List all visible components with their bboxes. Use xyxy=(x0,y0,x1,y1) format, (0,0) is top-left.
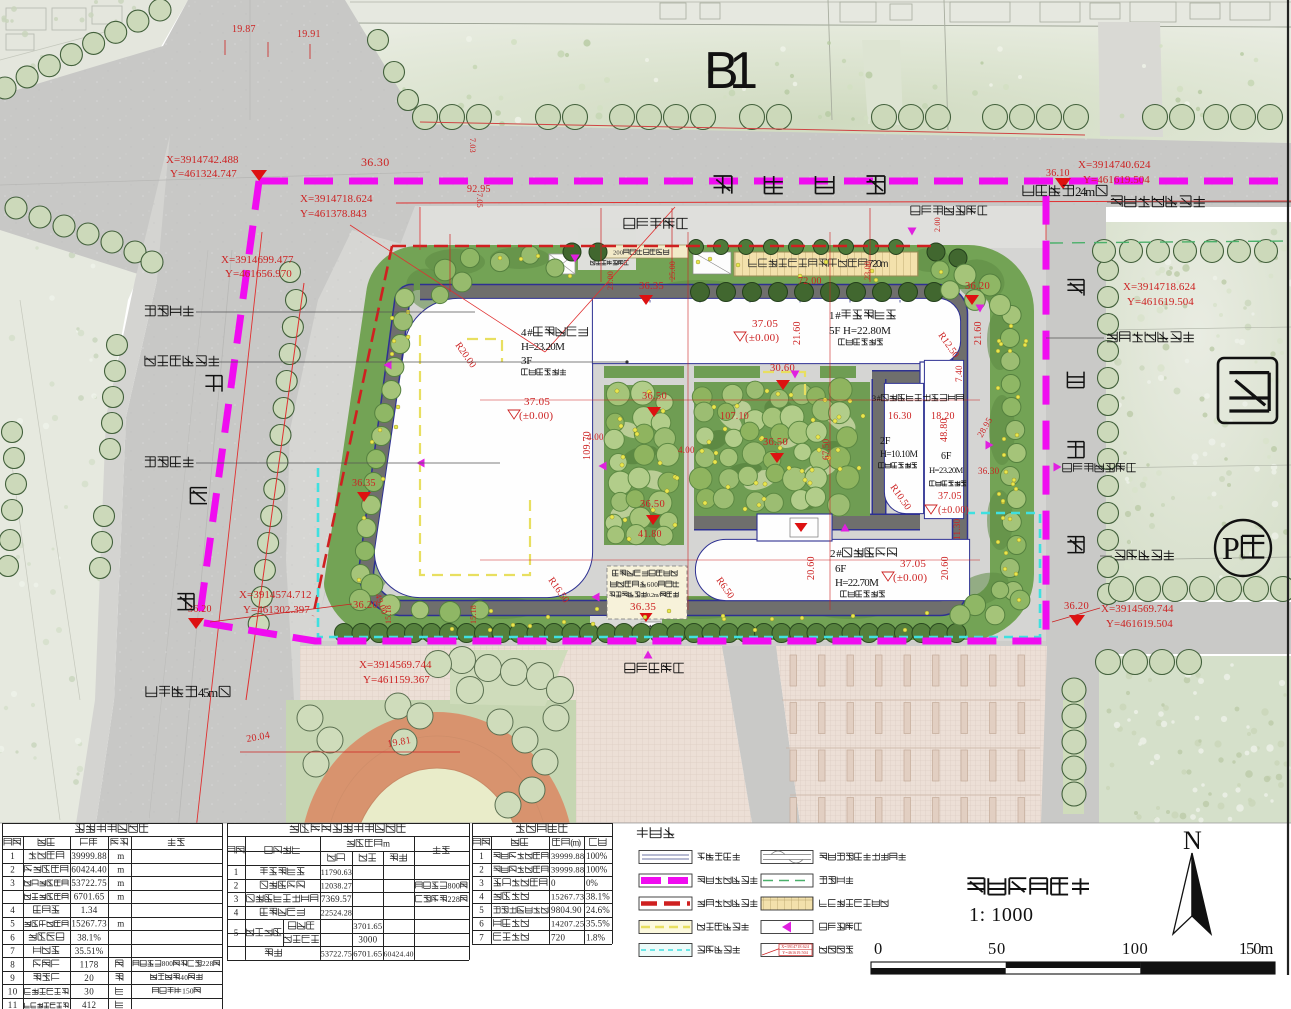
svg-text:23.00: 23.00 xyxy=(863,261,872,280)
svg-text:X=3914569.744: X=3914569.744 xyxy=(1101,603,1174,615)
svg-text:72.00: 72.00 xyxy=(798,276,822,287)
svg-text:45m: 45m xyxy=(198,685,218,700)
svg-text:7.05: 7.05 xyxy=(475,193,484,208)
svg-text:m: m xyxy=(117,919,124,929)
svg-text:36.50: 36.50 xyxy=(763,437,788,448)
svg-text:15267.73: 15267.73 xyxy=(71,919,107,929)
svg-text:5: 5 xyxy=(10,919,15,929)
svg-text:m: m xyxy=(117,851,124,861)
svg-text:30: 30 xyxy=(84,987,94,997)
svg-text:36.35: 36.35 xyxy=(352,478,376,489)
svg-text:Y=461324.747: Y=461324.747 xyxy=(170,168,237,180)
svg-text:36.50: 36.50 xyxy=(642,391,667,402)
svg-text:100%: 100% xyxy=(586,851,608,861)
svg-text:2: 2 xyxy=(10,865,15,875)
svg-text:2F: 2F xyxy=(880,436,891,447)
svg-text:9804.90: 9804.90 xyxy=(551,905,582,915)
svg-text:3F: 3F xyxy=(521,355,532,367)
svg-text:10: 10 xyxy=(8,987,18,997)
svg-text:3: 3 xyxy=(479,878,484,888)
svg-text:40: 40 xyxy=(180,973,188,982)
svg-text:22524.28: 22524.28 xyxy=(321,909,352,918)
svg-text:(m): (m) xyxy=(570,838,581,848)
svg-text:Y=461302.397: Y=461302.397 xyxy=(243,604,310,616)
svg-text:6F: 6F xyxy=(835,563,846,575)
svg-text:1: 1 xyxy=(10,851,15,861)
svg-text:38.1%: 38.1% xyxy=(586,892,610,902)
svg-text:H=10.10M: H=10.10M xyxy=(880,450,918,460)
svg-text:228: 228 xyxy=(448,895,460,904)
svg-text:0%: 0% xyxy=(586,878,598,888)
svg-text:N: N xyxy=(1183,826,1202,855)
svg-text:3: 3 xyxy=(234,894,239,904)
svg-text:36.30: 36.30 xyxy=(978,466,1000,476)
svg-text:25.00: 25.00 xyxy=(668,261,677,280)
svg-text:X=3914718.624: X=3914718.624 xyxy=(1123,281,1196,293)
svg-text:12038.27: 12038.27 xyxy=(321,882,352,891)
svg-text:19.87: 19.87 xyxy=(232,24,256,35)
svg-text:Y=461619.504: Y=461619.504 xyxy=(1127,296,1194,308)
svg-text:36.10: 36.10 xyxy=(1046,168,1070,179)
svg-text:Y=461619.504: Y=461619.504 xyxy=(782,950,808,955)
svg-text:11790.63: 11790.63 xyxy=(321,868,352,877)
svg-text:36.35: 36.35 xyxy=(630,601,656,613)
svg-text:3701.65: 3701.65 xyxy=(353,921,382,931)
svg-text:50: 50 xyxy=(988,939,1005,958)
svg-text:600: 600 xyxy=(647,581,659,589)
svg-text:53722.75: 53722.75 xyxy=(71,878,107,888)
svg-text:37.05: 37.05 xyxy=(752,318,778,330)
svg-text:37.05: 37.05 xyxy=(524,396,550,408)
svg-text:(±0.00): (±0.00) xyxy=(519,410,553,422)
svg-text:150m: 150m xyxy=(1239,939,1273,958)
svg-text:3: 3 xyxy=(10,878,15,888)
svg-text:200: 200 xyxy=(613,250,623,257)
svg-text:m: m xyxy=(117,865,124,875)
svg-text:16.30: 16.30 xyxy=(888,411,912,422)
svg-text:4#: 4# xyxy=(521,327,533,339)
svg-text:800: 800 xyxy=(162,960,174,968)
svg-text:21.60: 21.60 xyxy=(973,322,984,346)
svg-text:35.5%: 35.5% xyxy=(586,919,610,929)
svg-text:1178: 1178 xyxy=(80,959,99,969)
svg-text:6701.65: 6701.65 xyxy=(353,948,382,958)
svg-text:21.60: 21.60 xyxy=(792,322,803,346)
svg-text:20: 20 xyxy=(84,973,94,983)
svg-text:36.20: 36.20 xyxy=(353,600,378,611)
svg-text:6F: 6F xyxy=(941,451,952,462)
svg-text:0.2m/: 0.2m/ xyxy=(647,592,660,599)
svg-text:23.00: 23.00 xyxy=(606,271,615,290)
svg-text:7369.57: 7369.57 xyxy=(321,894,352,904)
svg-text:36.50: 36.50 xyxy=(640,499,665,510)
svg-text:800: 800 xyxy=(448,882,460,891)
svg-text:X=3914740.624: X=3914740.624 xyxy=(1078,159,1151,171)
svg-text:100: 100 xyxy=(1122,939,1148,958)
svg-text:Y=461656.970: Y=461656.970 xyxy=(225,268,292,280)
svg-text:3#: 3# xyxy=(872,394,881,403)
svg-text:36.20: 36.20 xyxy=(965,281,990,292)
svg-text:5F H=22.80M: 5F H=22.80M xyxy=(829,325,891,337)
svg-text:38.1%: 38.1% xyxy=(77,932,101,942)
svg-text:150: 150 xyxy=(182,986,194,995)
svg-text:8: 8 xyxy=(10,959,15,969)
svg-text:2#: 2# xyxy=(830,548,842,560)
svg-text:2: 2 xyxy=(479,865,484,875)
svg-text:60424.40: 60424.40 xyxy=(384,949,414,958)
svg-text:109.70: 109.70 xyxy=(582,431,593,460)
svg-text:100%: 100% xyxy=(586,865,608,875)
svg-text:412: 412 xyxy=(82,1000,96,1009)
svg-text:(±0.00): (±0.00) xyxy=(745,332,779,344)
svg-text:X=3914718.624: X=3914718.624 xyxy=(781,944,810,949)
svg-text:4: 4 xyxy=(479,892,484,902)
svg-text:24.6%: 24.6% xyxy=(586,905,610,915)
svg-text:36.20: 36.20 xyxy=(1064,601,1089,612)
svg-text:15.18: 15.18 xyxy=(469,605,478,624)
svg-text:60424.40: 60424.40 xyxy=(71,865,107,875)
svg-text:Y=461619.504: Y=461619.504 xyxy=(1106,618,1173,630)
svg-text:X=3914569.744: X=3914569.744 xyxy=(359,659,432,671)
svg-text:11: 11 xyxy=(8,1000,17,1009)
svg-text:5: 5 xyxy=(479,905,484,915)
svg-text:5: 5 xyxy=(234,928,239,938)
svg-text:X=3914718.624: X=3914718.624 xyxy=(300,193,373,205)
svg-text:H=22.70M: H=22.70M xyxy=(835,577,879,589)
svg-text:15267.73: 15267.73 xyxy=(551,893,584,902)
svg-text:36.35: 36.35 xyxy=(639,281,664,292)
svg-text:39999.88: 39999.88 xyxy=(551,852,584,861)
svg-text:11.30: 11.30 xyxy=(952,518,962,540)
svg-text:4: 4 xyxy=(234,908,239,918)
svg-text:35.51%: 35.51% xyxy=(75,946,104,956)
svg-text:24m: 24m xyxy=(1075,184,1095,199)
svg-text:m: m xyxy=(117,892,124,902)
svg-text:1: 1 xyxy=(479,851,484,861)
svg-text:3000: 3000 xyxy=(358,935,377,945)
svg-text:X=3914574.712: X=3914574.712 xyxy=(239,589,312,601)
svg-text:Y=461378.843: Y=461378.843 xyxy=(300,208,367,220)
svg-text:720: 720 xyxy=(551,932,566,942)
svg-text:48.80: 48.80 xyxy=(939,419,950,443)
svg-text:B1: B1 xyxy=(704,42,758,100)
svg-text:7: 7 xyxy=(479,932,484,942)
svg-text:0: 0 xyxy=(874,939,882,958)
svg-text:2: 2 xyxy=(234,881,239,891)
svg-text:228: 228 xyxy=(202,960,214,968)
svg-text:53722.75: 53722.75 xyxy=(321,949,352,958)
svg-text:H=23.20M: H=23.20M xyxy=(929,465,964,475)
svg-text:4.00: 4.00 xyxy=(678,445,695,455)
svg-text:7.40: 7.40 xyxy=(954,365,964,382)
svg-text:0: 0 xyxy=(551,878,556,888)
svg-text:2.00: 2.00 xyxy=(933,217,942,232)
svg-text:Y=461159.367: Y=461159.367 xyxy=(363,674,430,686)
svg-text:H=23.20M: H=23.20M xyxy=(521,341,565,353)
svg-text:X=3914742.488: X=3914742.488 xyxy=(166,154,239,166)
svg-text:14207.25: 14207.25 xyxy=(551,920,584,929)
svg-text:X=3914699.477: X=3914699.477 xyxy=(221,254,294,266)
svg-text:6: 6 xyxy=(479,919,484,929)
svg-text:6701.65: 6701.65 xyxy=(74,892,105,902)
svg-text:P: P xyxy=(1222,530,1240,566)
svg-text:107.10: 107.10 xyxy=(720,411,749,422)
svg-text:9: 9 xyxy=(10,973,15,983)
svg-text:36.30: 36.30 xyxy=(361,155,389,169)
svg-text:19.91: 19.91 xyxy=(297,29,321,40)
svg-text:37.05: 37.05 xyxy=(938,491,962,502)
svg-text:1: 1 xyxy=(234,867,239,877)
svg-text:1: 1000: 1: 1000 xyxy=(969,904,1033,926)
svg-text:30.60: 30.60 xyxy=(770,363,795,374)
svg-text:1#: 1# xyxy=(829,310,841,322)
svg-text:1.34: 1.34 xyxy=(81,905,98,915)
svg-text:6: 6 xyxy=(10,932,15,942)
svg-text:67.50: 67.50 xyxy=(821,438,831,460)
svg-text:m: m xyxy=(117,878,124,888)
svg-text:7.03: 7.03 xyxy=(468,138,477,153)
svg-text:(±0.00): (±0.00) xyxy=(893,572,927,584)
svg-text:4: 4 xyxy=(10,905,15,915)
svg-text:1.8%: 1.8% xyxy=(586,932,606,942)
svg-text:7: 7 xyxy=(10,946,15,956)
svg-text:39999.88: 39999.88 xyxy=(71,851,107,861)
svg-text:39999.88: 39999.88 xyxy=(551,866,584,875)
svg-text:41.80: 41.80 xyxy=(638,529,662,540)
svg-text:(±0.00): (±0.00) xyxy=(938,505,969,516)
svg-text:m: m xyxy=(383,839,390,849)
